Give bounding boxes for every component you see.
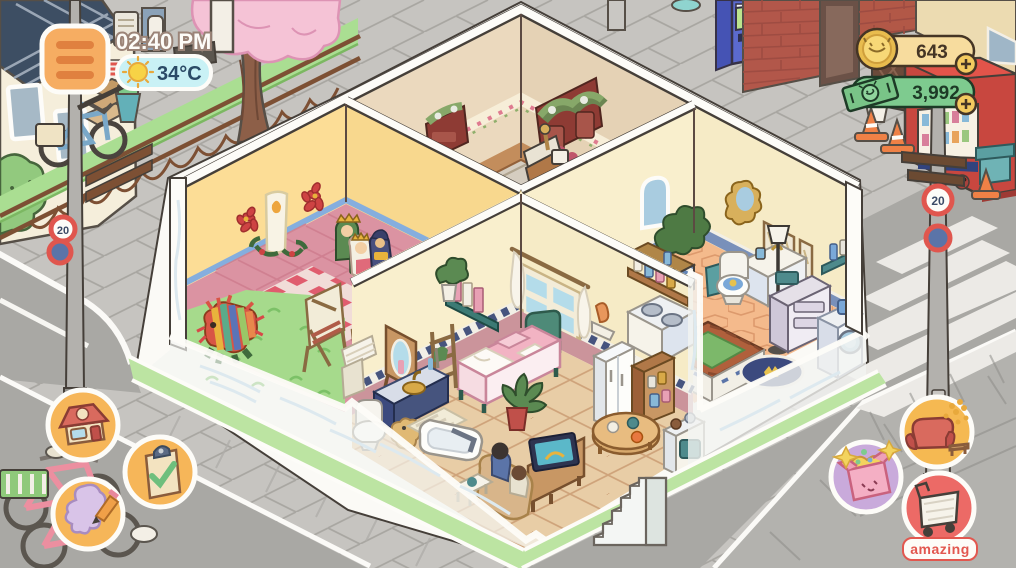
svg-text:02:40 PM: 02:40 PM <box>116 29 211 54</box>
svg-text:20: 20 <box>57 225 69 237</box>
svg-text:643: 643 <box>916 42 948 63</box>
svg-text:amazing: amazing <box>910 541 970 557</box>
svg-text:34°C: 34°C <box>157 63 202 85</box>
svg-text:3,992: 3,992 <box>912 83 960 104</box>
svg-text:20: 20 <box>931 194 945 208</box>
